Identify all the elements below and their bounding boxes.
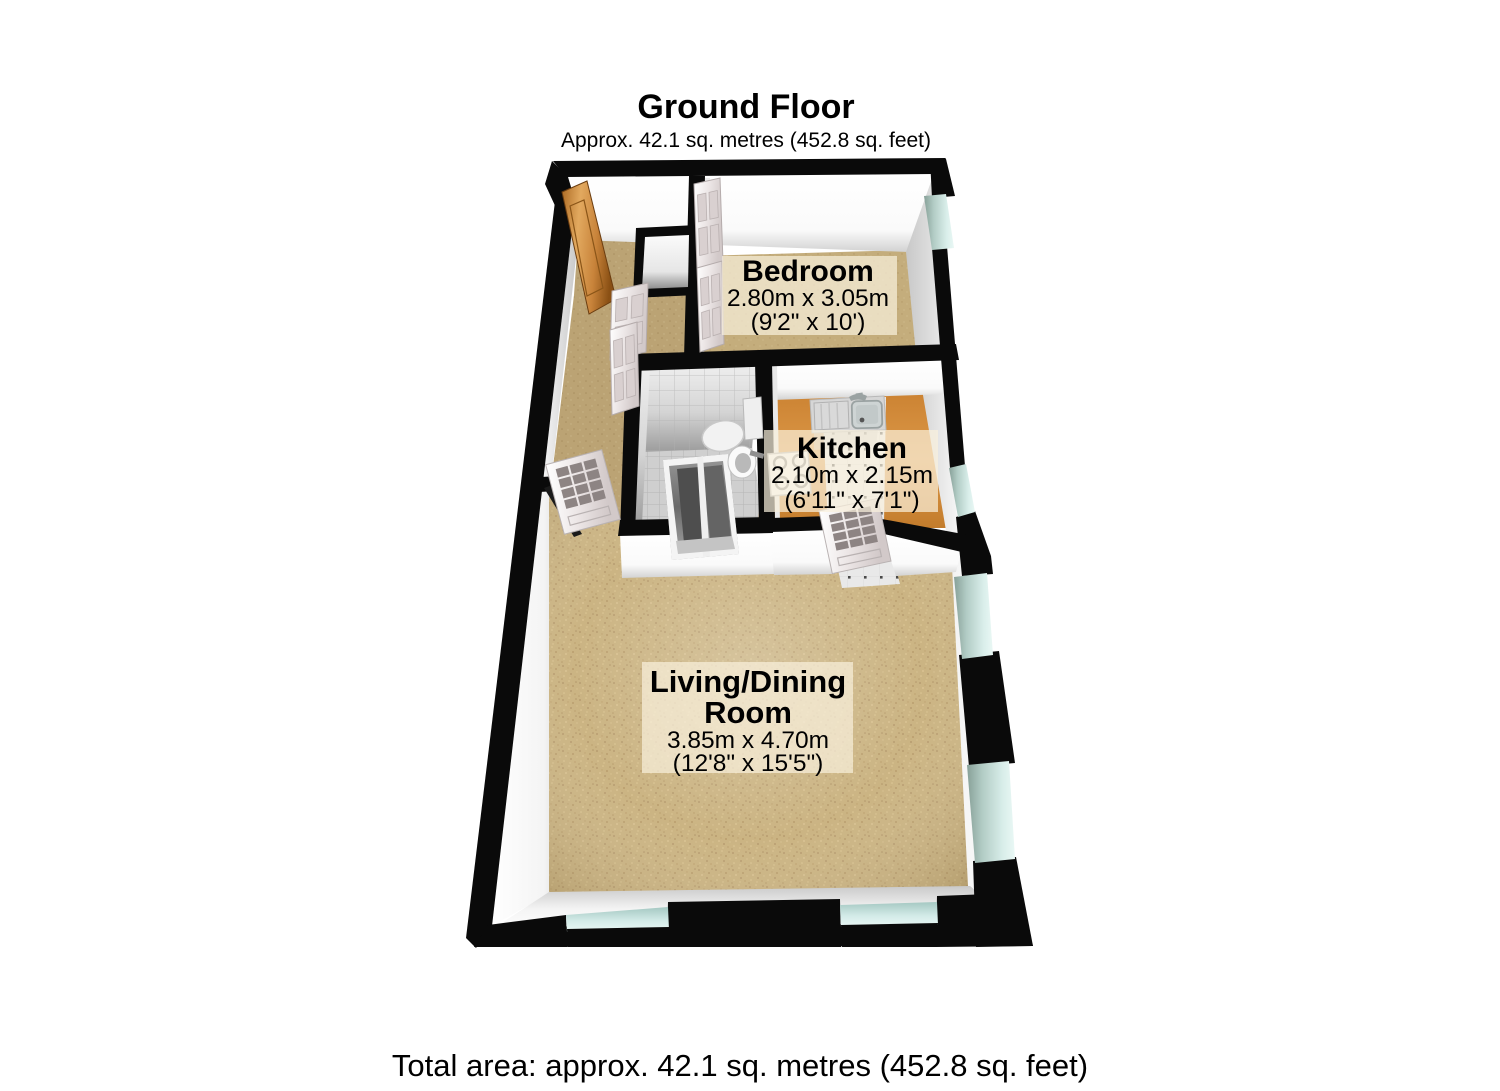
svg-text:Bedroom: Bedroom — [742, 255, 874, 288]
svg-text:(9'2" x 10'): (9'2" x 10') — [751, 309, 866, 336]
svg-text:(12'8" x 15'5"): (12'8" x 15'5") — [673, 750, 824, 777]
svg-text:Room: Room — [704, 695, 792, 730]
svg-text:2.80m x 3.05m: 2.80m x 3.05m — [727, 285, 889, 312]
svg-text:Kitchen: Kitchen — [797, 432, 907, 465]
svg-text:2.10m x 2.15m: 2.10m x 2.15m — [771, 462, 933, 489]
svg-text:Living/Dining: Living/Dining — [650, 664, 846, 699]
svg-text:(6'11" x 7'1"): (6'11" x 7'1") — [784, 487, 919, 514]
